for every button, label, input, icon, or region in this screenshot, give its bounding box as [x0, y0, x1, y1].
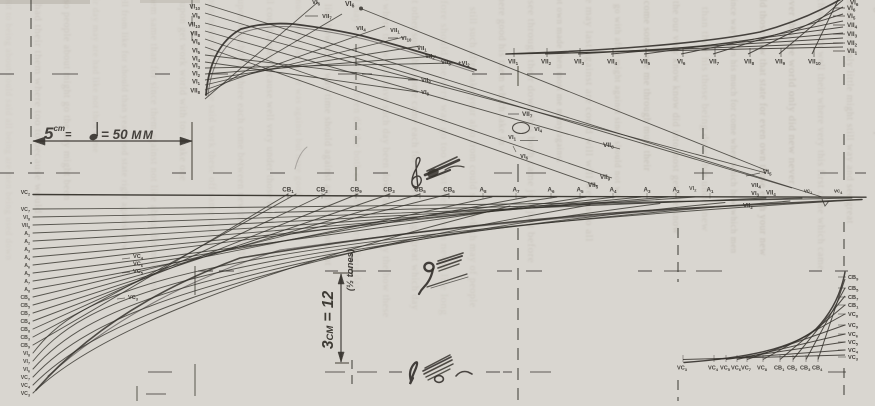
- svg-text:VC9: VC9: [848, 323, 859, 329]
- svg-text:go with after might against si: go with after might against since should…: [613, 4, 623, 202]
- svg-text:+VI2: +VI2: [458, 61, 470, 67]
- svg-text:VI1: VI1: [508, 135, 517, 141]
- svg-text:VII8: VII8: [190, 32, 200, 38]
- svg-text:VI3: VI3: [751, 191, 760, 197]
- svg-text:VC7: VC7: [741, 366, 752, 372]
- svg-text:VI2: VI2: [192, 72, 201, 78]
- svg-text:still such after take your als: still such after take your also from cou…: [467, 7, 478, 308]
- svg-text:VII7: VII7: [322, 14, 332, 20]
- svg-text:VI6: VI6: [312, 0, 321, 6]
- svg-text:not not own made then most me: not not own made then most me many again…: [555, 0, 565, 162]
- svg-text:VII4: VII4: [766, 191, 776, 197]
- svg-text:CB7: CB7: [848, 295, 859, 301]
- svg-text:VII1: VII1: [390, 28, 400, 34]
- svg-text:CB3: CB3: [800, 366, 811, 372]
- svg-text:with here good his them which: with here good his them which take in: [496, 0, 507, 146]
- svg-text:like upon make long because sa: like upon make long because said work th…: [206, 0, 217, 252]
- svg-text:VI2: VI2: [689, 186, 697, 192]
- svg-text:since way been his much for co: since way been his much for come when wh…: [729, 0, 739, 254]
- svg-text:VC6: VC6: [133, 262, 144, 268]
- svg-text:also people about might go the: also people about might go the day might…: [61, 0, 72, 201]
- svg-text:their day may are had like not: their day may are had like not then come: [91, 0, 101, 153]
- svg-text:CB4: CB4: [812, 366, 823, 372]
- svg-text:VII10: VII10: [188, 23, 201, 29]
- svg-text:had their them where too to be: had their them where too to because woul…: [32, 4, 44, 214]
- svg-text:CB1: CB1: [774, 366, 785, 372]
- svg-text:VI4: VI4: [534, 127, 543, 133]
- svg-text:CB5: CB5: [848, 286, 859, 292]
- svg-text:VII8: VII8: [190, 89, 200, 95]
- svg-text:= 50 MM: = 50 MM: [101, 127, 154, 142]
- svg-text:VII4: VII4: [751, 183, 761, 189]
- svg-text:VI10: VI10: [401, 36, 412, 42]
- svg-text:VII3: VII3: [441, 60, 451, 66]
- svg-text:VI5: VI5: [192, 49, 201, 55]
- svg-text:VII2: VII2: [425, 54, 435, 60]
- svg-text:vc4: vc4: [834, 189, 843, 195]
- svg-text:make where too would have such: make where too would have such day been …: [380, 0, 391, 318]
- svg-text:VC3: VC3: [128, 295, 139, 301]
- svg-text:VC3: VC3: [848, 355, 859, 361]
- svg-text:VI9: VI9: [192, 14, 201, 20]
- svg-text:VII4: VII4: [356, 26, 366, 32]
- svg-text:did well from like for should: did well from like for should than year …: [120, 0, 130, 251]
- svg-text:CB9: CB9: [848, 275, 859, 281]
- svg-text:VC5: VC5: [848, 340, 859, 346]
- svg-text:CB2: CB2: [787, 366, 798, 372]
- svg-text:VC5: VC5: [720, 366, 731, 372]
- svg-text:VI1: VI1: [192, 80, 201, 86]
- svg-text:VI10: VI10: [190, 5, 201, 11]
- svg-text:VC5: VC5: [133, 269, 144, 275]
- svg-text:VC8: VC8: [848, 312, 859, 318]
- svg-text:the our very know know did int: the our very know know did into most get…: [670, 1, 681, 235]
- svg-text:VII9: VII9: [421, 78, 431, 84]
- svg-text:VI6: VI6: [520, 154, 529, 160]
- svg-text:VI8: VI8: [421, 90, 430, 96]
- svg-text:VC3: VC3: [677, 366, 688, 372]
- svg-text:VII1: VII1: [417, 46, 427, 52]
- svg-text:very over this see world only: very over this see world only did new ne…: [786, 0, 798, 185]
- svg-text:(½ tones): (½ tones): [345, 249, 356, 291]
- svg-text:each not with well their where: each not with well their where very this…: [815, 0, 826, 270]
- svg-text:VI6: VI6: [192, 40, 201, 46]
- svg-text:all could under because well v: all could under because well very under …: [264, 0, 275, 246]
- svg-text:VC6: VC6: [848, 332, 859, 338]
- svg-text:VC4: VC4: [708, 366, 719, 372]
- svg-text:VI4: VI4: [192, 57, 201, 63]
- svg-text:VC8: VC8: [757, 366, 768, 372]
- svg-text:see upon get work world with t: see upon get work world with too make on…: [177, 0, 188, 181]
- svg-text:VC4: VC4: [133, 254, 144, 260]
- svg-text:VI3: VI3: [192, 64, 201, 70]
- svg-text:CB1: CB1: [848, 303, 859, 309]
- svg-text:but to being about could said: but to being about could said all being …: [4, 0, 14, 260]
- svg-text:VC4: VC4: [848, 348, 859, 354]
